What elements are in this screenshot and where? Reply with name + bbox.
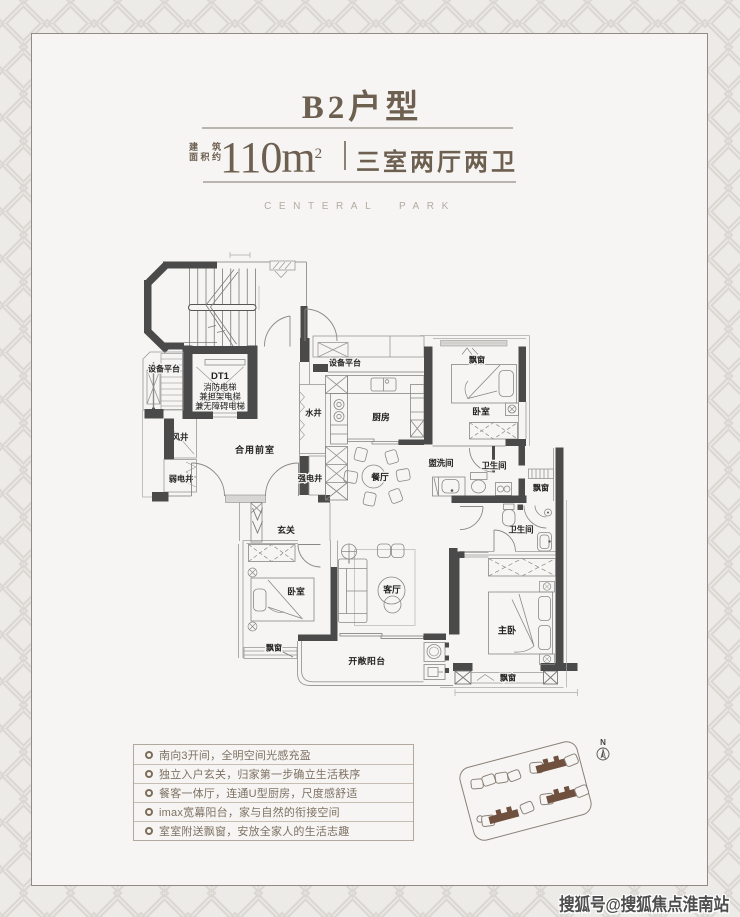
svg-text:飘窗: 飘窗 [266, 643, 282, 653]
svg-text:N: N [600, 738, 606, 747]
svg-text:飘窗: 飘窗 [500, 673, 516, 683]
svg-text:厨房: 厨房 [372, 411, 390, 422]
svg-text:卧室: 卧室 [287, 586, 305, 597]
svg-text:强电井: 强电井 [298, 473, 323, 483]
svg-text:飘窗: 飘窗 [533, 483, 549, 493]
svg-text:开敞阳台: 开敞阳台 [348, 655, 385, 666]
svg-text:风井: 风井 [172, 432, 189, 442]
svg-text:餐厅: 餐厅 [370, 471, 389, 482]
svg-text:设备平台: 设备平台 [148, 364, 180, 374]
svg-text:设备平台: 设备平台 [329, 358, 361, 368]
svg-text:消防电梯: 消防电梯 [203, 382, 236, 392]
svg-text:兼担架电梯: 兼担架电梯 [199, 392, 241, 402]
svg-text:弱电井: 弱电井 [169, 474, 194, 484]
svg-text:主卧: 主卧 [498, 625, 517, 636]
svg-text:合用前室: 合用前室 [235, 444, 275, 455]
svg-text:客厅: 客厅 [382, 584, 401, 595]
svg-text:卫生间: 卫生间 [508, 525, 533, 535]
svg-text:卧室: 卧室 [472, 406, 490, 417]
svg-text:卫生间: 卫生间 [481, 461, 506, 471]
svg-text:飘窗: 飘窗 [469, 355, 485, 365]
svg-text:兼无障碍电梯: 兼无障碍电梯 [195, 401, 245, 411]
svg-text:水井: 水井 [305, 408, 321, 418]
svg-text:盥洗间: 盥洗间 [428, 458, 453, 468]
svg-text:DT1: DT1 [211, 371, 230, 382]
svg-text:玄关: 玄关 [277, 524, 295, 535]
